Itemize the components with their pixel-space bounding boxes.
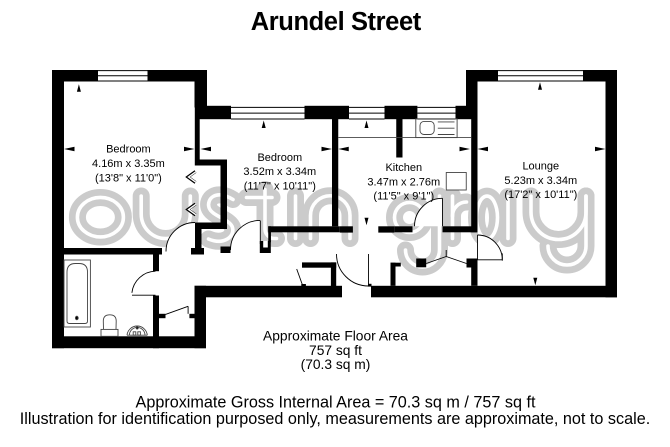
svg-text:Approximate Gross Internal Are: Approximate Gross Internal Area = 70.3 s… <box>136 394 536 412</box>
svg-text:Approximate Floor Area: Approximate Floor Area <box>263 329 408 344</box>
svg-text:5.23m x 3.34m: 5.23m x 3.34m <box>504 175 577 187</box>
svg-text:(17'2" x 10'11"): (17'2" x 10'11") <box>504 189 577 201</box>
svg-text:Bedroom: Bedroom <box>257 152 302 164</box>
svg-text:Bedroom: Bedroom <box>106 144 151 156</box>
svg-text:(11'5" x 9'1"): (11'5" x 9'1") <box>373 191 434 203</box>
svg-text:(13'8" x 11'0"): (13'8" x 11'0") <box>95 172 162 184</box>
svg-text:Illustration for identificatio: Illustration for identification purposed… <box>20 410 650 428</box>
svg-text:3.52m x 3.34m: 3.52m x 3.34m <box>243 166 316 178</box>
svg-text:Arundel Street: Arundel Street <box>251 8 422 36</box>
svg-text:4.16m x 3.35m: 4.16m x 3.35m <box>92 158 165 170</box>
svg-text:Kitchen: Kitchen <box>385 162 422 174</box>
svg-text:757 sq ft: 757 sq ft <box>309 343 362 358</box>
svg-text:Lounge: Lounge <box>522 161 559 173</box>
svg-text:(11'7" x 10'11"): (11'7" x 10'11") <box>244 180 316 192</box>
svg-text:3.47m x 2.76m: 3.47m x 2.76m <box>367 176 440 188</box>
svg-text:(70.3 sq m): (70.3 sq m) <box>301 357 371 372</box>
